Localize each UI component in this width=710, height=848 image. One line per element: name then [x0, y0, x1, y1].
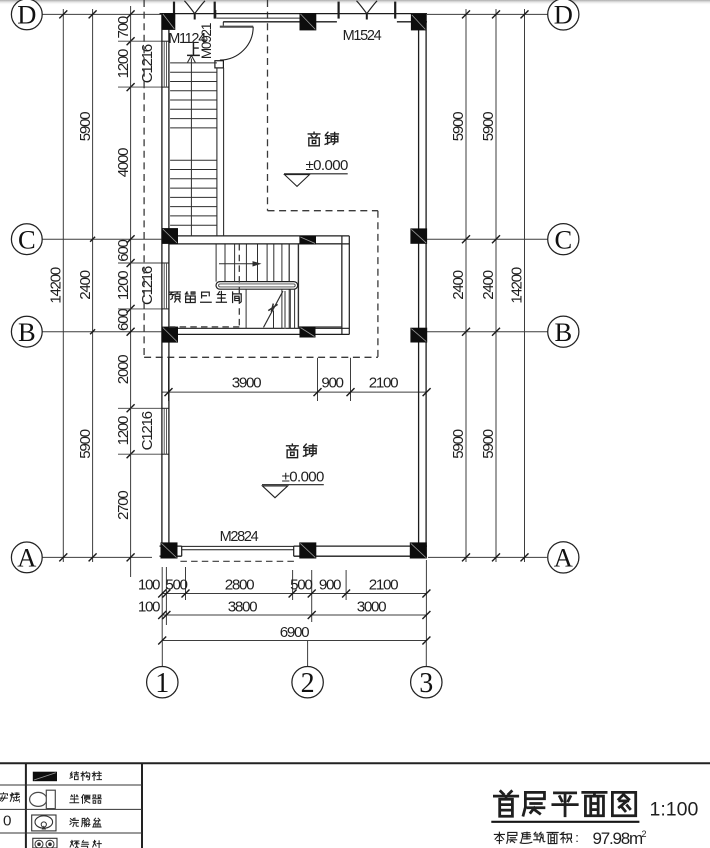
svg-text:1200: 1200	[115, 416, 132, 445]
svg-text:2: 2	[642, 829, 647, 839]
svg-text::: :	[575, 830, 579, 845]
svg-text:2: 2	[301, 668, 315, 699]
svg-text:2100: 2100	[369, 577, 398, 594]
svg-text:M1524: M1524	[343, 28, 382, 44]
svg-text:A: A	[554, 543, 573, 573]
svg-text:14200: 14200	[509, 267, 526, 303]
svg-text:100: 100	[138, 577, 160, 594]
svg-text:2100: 2100	[369, 375, 398, 392]
svg-text:14200: 14200	[48, 267, 65, 303]
svg-text:3800: 3800	[228, 599, 257, 616]
svg-text:B: B	[18, 317, 36, 347]
svg-text:3: 3	[419, 668, 433, 699]
svg-text:2000: 2000	[115, 355, 132, 384]
svg-text:M0921: M0921	[199, 23, 214, 59]
svg-text:B: B	[554, 317, 572, 347]
svg-text:D: D	[554, 0, 573, 30]
svg-text:5900: 5900	[450, 112, 467, 141]
svg-text:±0.000: ±0.000	[282, 468, 324, 485]
svg-text:C1216: C1216	[139, 411, 156, 450]
svg-text:500: 500	[165, 577, 187, 594]
svg-text:3900: 3900	[232, 375, 261, 392]
svg-text:5900: 5900	[450, 429, 467, 458]
svg-text:4000: 4000	[115, 148, 132, 177]
svg-text:97.98m: 97.98m	[593, 829, 644, 848]
svg-text:1200: 1200	[115, 49, 132, 78]
svg-text:C1216: C1216	[139, 266, 156, 305]
svg-text:500: 500	[290, 577, 312, 594]
svg-text:;: ;	[18, 794, 21, 805]
svg-text:2400: 2400	[450, 270, 467, 299]
svg-text:1:100: 1:100	[650, 799, 699, 821]
svg-text:5900: 5900	[77, 429, 94, 458]
svg-text:2700: 2700	[115, 491, 132, 520]
svg-text:5900: 5900	[480, 112, 497, 141]
svg-text:900: 900	[319, 577, 341, 594]
svg-text:5900: 5900	[480, 429, 497, 458]
svg-text:M2824: M2824	[220, 529, 259, 545]
svg-text:D: D	[17, 0, 36, 30]
svg-text:C: C	[554, 225, 572, 255]
svg-text:5900: 5900	[77, 112, 94, 141]
svg-text:600: 600	[115, 240, 132, 262]
svg-text:1: 1	[155, 668, 169, 699]
svg-text:1200: 1200	[115, 271, 132, 300]
svg-text:900: 900	[321, 375, 343, 392]
svg-text:600: 600	[115, 309, 132, 331]
svg-text:100: 100	[138, 599, 160, 616]
svg-text:0: 0	[3, 813, 11, 830]
svg-text:±0.000: ±0.000	[306, 157, 348, 174]
svg-text:C: C	[18, 225, 36, 255]
svg-text:A: A	[17, 543, 36, 573]
svg-text:2400: 2400	[480, 270, 497, 299]
svg-text:2800: 2800	[225, 577, 254, 594]
svg-text:700: 700	[115, 16, 132, 38]
svg-text:3000: 3000	[357, 599, 386, 616]
svg-text:C1216: C1216	[139, 44, 156, 83]
svg-text:6900: 6900	[280, 624, 309, 641]
svg-text:2400: 2400	[77, 270, 94, 299]
